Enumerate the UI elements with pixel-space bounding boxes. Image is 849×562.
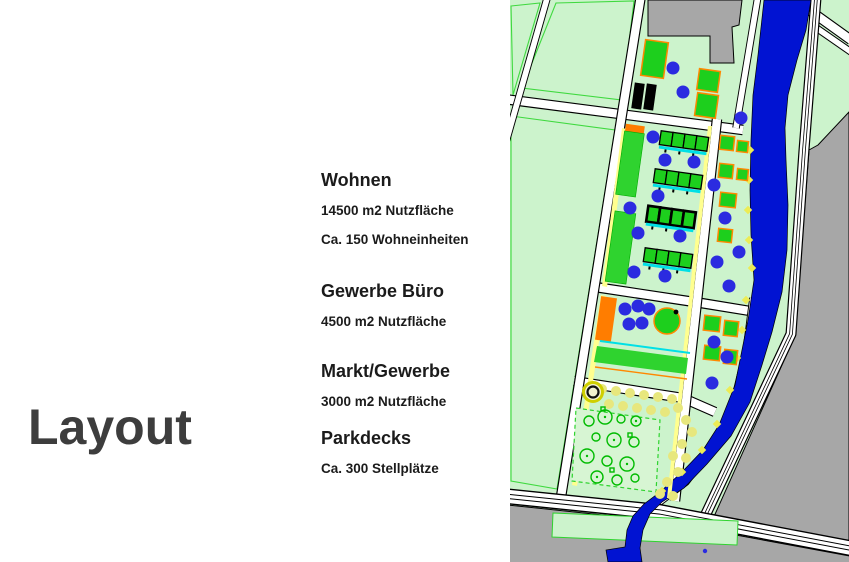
fountain <box>584 383 603 402</box>
section-line: Ca. 300 Stellplätze <box>321 461 439 476</box>
page-title: Layout <box>28 398 192 456</box>
section-line: 14500 m2 Nutzfläche <box>321 203 454 218</box>
section-heading-markt-gewerbe: Markt/Gewerbe <box>321 361 450 382</box>
presentation-slide: { "slide": { "title": "Layout", "section… <box>0 0 849 562</box>
section-line: 3000 m2 Nutzfläche <box>321 394 446 409</box>
section-line: Ca. 150 Wohneinheiten <box>321 232 469 247</box>
site-plan-map <box>510 0 849 562</box>
section-heading-wohnen: Wohnen <box>321 170 392 191</box>
section-line: 4500 m2 Nutzfläche <box>321 314 446 329</box>
section-heading-gewerbe-buero: Gewerbe Büro <box>321 281 444 302</box>
section-heading-parkdecks: Parkdecks <box>321 428 411 449</box>
